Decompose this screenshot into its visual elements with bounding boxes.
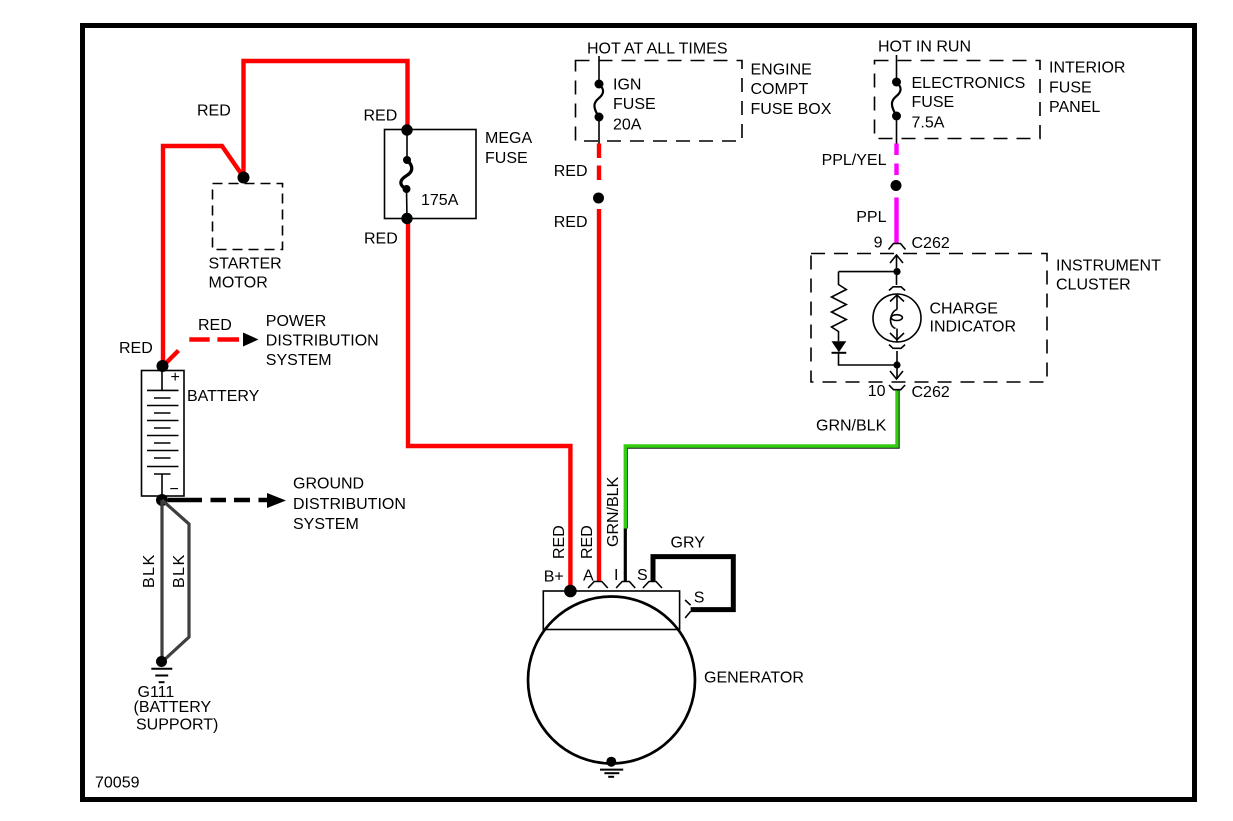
svg-text:B+: B+: [544, 569, 564, 586]
svg-text:FUSE: FUSE: [485, 150, 528, 167]
svg-text:INSTRUMENT: INSTRUMENT: [1056, 257, 1161, 274]
svg-text:SYSTEM: SYSTEM: [266, 352, 332, 369]
svg-text:FUSE: FUSE: [613, 96, 656, 113]
svg-text:+: +: [171, 369, 180, 386]
svg-text:BLK: BLK: [171, 553, 188, 588]
svg-text:FUSE: FUSE: [1049, 79, 1092, 96]
svg-text:RED: RED: [554, 163, 588, 180]
svg-text:(BATTERY: (BATTERY: [134, 699, 212, 716]
svg-text:7.5A: 7.5A: [912, 114, 945, 131]
svg-text:PANEL: PANEL: [1049, 99, 1100, 116]
svg-text:RED: RED: [198, 317, 232, 334]
svg-text:RED: RED: [364, 107, 398, 124]
svg-text:GENERATOR: GENERATOR: [704, 670, 804, 687]
svg-text:SUPPORT): SUPPORT): [136, 717, 218, 734]
svg-text:RED: RED: [364, 231, 398, 248]
svg-text:RED: RED: [579, 525, 596, 559]
svg-text:MEGA: MEGA: [485, 130, 532, 147]
svg-text:ENGINE: ENGINE: [751, 62, 812, 79]
svg-text:SYSTEM: SYSTEM: [293, 516, 359, 533]
svg-text:RED: RED: [119, 340, 153, 357]
svg-text:RED: RED: [551, 525, 568, 559]
svg-text:HOT AT ALL TIMES: HOT AT ALL TIMES: [587, 41, 728, 58]
svg-text:C262: C262: [912, 235, 950, 252]
svg-text:HOT IN RUN: HOT IN RUN: [878, 39, 971, 56]
svg-text:BLK: BLK: [141, 553, 158, 588]
svg-text:CLUSTER: CLUSTER: [1056, 276, 1131, 293]
svg-text:10: 10: [868, 383, 886, 400]
svg-text:DISTRIBUTION: DISTRIBUTION: [266, 332, 379, 349]
svg-text:IGN: IGN: [613, 76, 641, 93]
svg-text:POWER: POWER: [266, 313, 326, 330]
svg-text:A: A: [583, 567, 594, 584]
svg-text:RED: RED: [554, 214, 588, 231]
svg-text:RED: RED: [197, 102, 231, 119]
svg-text:9: 9: [874, 235, 883, 252]
svg-text:175A: 175A: [421, 192, 459, 209]
svg-text:FUSE BOX: FUSE BOX: [751, 101, 832, 118]
svg-text:ELECTRONICS: ELECTRONICS: [912, 75, 1026, 92]
svg-text:PPL: PPL: [856, 209, 886, 226]
svg-text:I: I: [614, 567, 618, 584]
svg-text:−: −: [170, 481, 179, 498]
svg-text:C262: C262: [912, 384, 950, 401]
svg-text:BATTERY: BATTERY: [187, 388, 260, 405]
svg-text:GROUND: GROUND: [293, 476, 364, 493]
svg-text:INTERIOR: INTERIOR: [1049, 59, 1125, 76]
svg-text:S: S: [694, 590, 705, 607]
svg-text:GRY: GRY: [671, 534, 706, 551]
svg-text:COMPT: COMPT: [751, 81, 809, 98]
svg-text:20A: 20A: [613, 117, 642, 134]
svg-text:GRN/BLK: GRN/BLK: [816, 418, 887, 435]
svg-text:CHARGE: CHARGE: [930, 300, 998, 317]
svg-text:DISTRIBUTION: DISTRIBUTION: [293, 496, 406, 513]
svg-text:PPL/YEL: PPL/YEL: [822, 152, 887, 169]
svg-text:70059: 70059: [95, 775, 140, 792]
svg-text:S: S: [637, 567, 648, 584]
svg-text:MOTOR: MOTOR: [209, 274, 268, 291]
svg-text:INDICATOR: INDICATOR: [930, 319, 1017, 336]
svg-text:STARTER: STARTER: [209, 256, 282, 273]
svg-text:FUSE: FUSE: [912, 94, 955, 111]
svg-text:GRN/BLK: GRN/BLK: [605, 476, 622, 547]
